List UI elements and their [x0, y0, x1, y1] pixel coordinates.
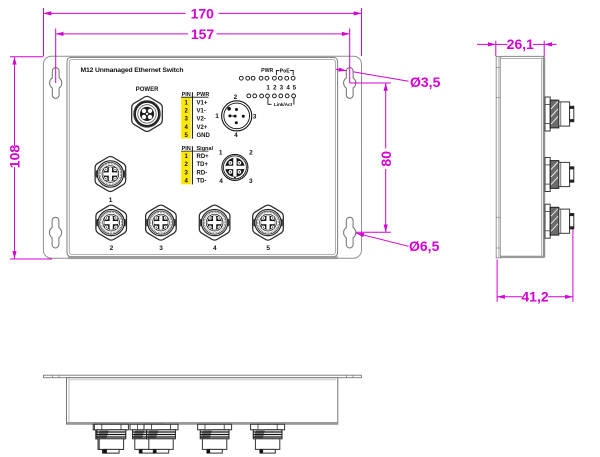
- svg-text:PWR: PWR: [261, 68, 273, 74]
- svg-text:M12 Unmanaged Ethernet Switch: M12 Unmanaged Ethernet Switch: [81, 67, 184, 74]
- svg-text:1: 1: [219, 149, 223, 156]
- svg-text:4: 4: [234, 132, 238, 139]
- svg-text:GND: GND: [197, 133, 211, 139]
- svg-text:V2+: V2+: [197, 125, 208, 131]
- svg-text:80: 80: [378, 151, 394, 167]
- svg-text:5: 5: [266, 245, 270, 252]
- svg-text:TD+: TD+: [197, 162, 209, 168]
- svg-text:4: 4: [213, 245, 217, 252]
- svg-text:V2-: V2-: [197, 117, 206, 123]
- svg-text:5: 5: [293, 85, 297, 92]
- svg-text:Link/Act: Link/Act: [274, 102, 293, 108]
- svg-text:RD+: RD+: [197, 154, 210, 160]
- svg-text:RD-: RD-: [197, 170, 208, 176]
- svg-text:170: 170: [191, 6, 215, 22]
- svg-text:2: 2: [234, 94, 238, 101]
- svg-text:Ø3,5: Ø3,5: [410, 74, 441, 90]
- svg-text:PoE: PoE: [280, 68, 291, 74]
- svg-text:4: 4: [286, 85, 290, 92]
- svg-text:TD-: TD-: [197, 178, 207, 184]
- svg-text:1: 1: [215, 113, 219, 120]
- svg-text:1: 1: [266, 85, 270, 92]
- svg-text:26,1: 26,1: [507, 36, 534, 52]
- svg-text:V1+: V1+: [197, 100, 208, 106]
- svg-text:2: 2: [273, 85, 277, 92]
- svg-text:3: 3: [159, 245, 163, 252]
- svg-text:Ø6,5: Ø6,5: [409, 238, 440, 254]
- svg-text:2: 2: [249, 150, 253, 157]
- svg-text:108: 108: [7, 145, 23, 169]
- svg-text:POWER: POWER: [136, 87, 159, 93]
- svg-text:3: 3: [249, 178, 253, 185]
- svg-text:3: 3: [253, 113, 257, 120]
- svg-text:157: 157: [191, 26, 215, 42]
- svg-text:41,2: 41,2: [521, 288, 548, 304]
- svg-text:3: 3: [280, 85, 284, 92]
- svg-text:2: 2: [110, 245, 114, 252]
- svg-text:1: 1: [109, 197, 113, 204]
- svg-text:V1-: V1-: [197, 108, 206, 114]
- svg-text:4: 4: [219, 178, 223, 185]
